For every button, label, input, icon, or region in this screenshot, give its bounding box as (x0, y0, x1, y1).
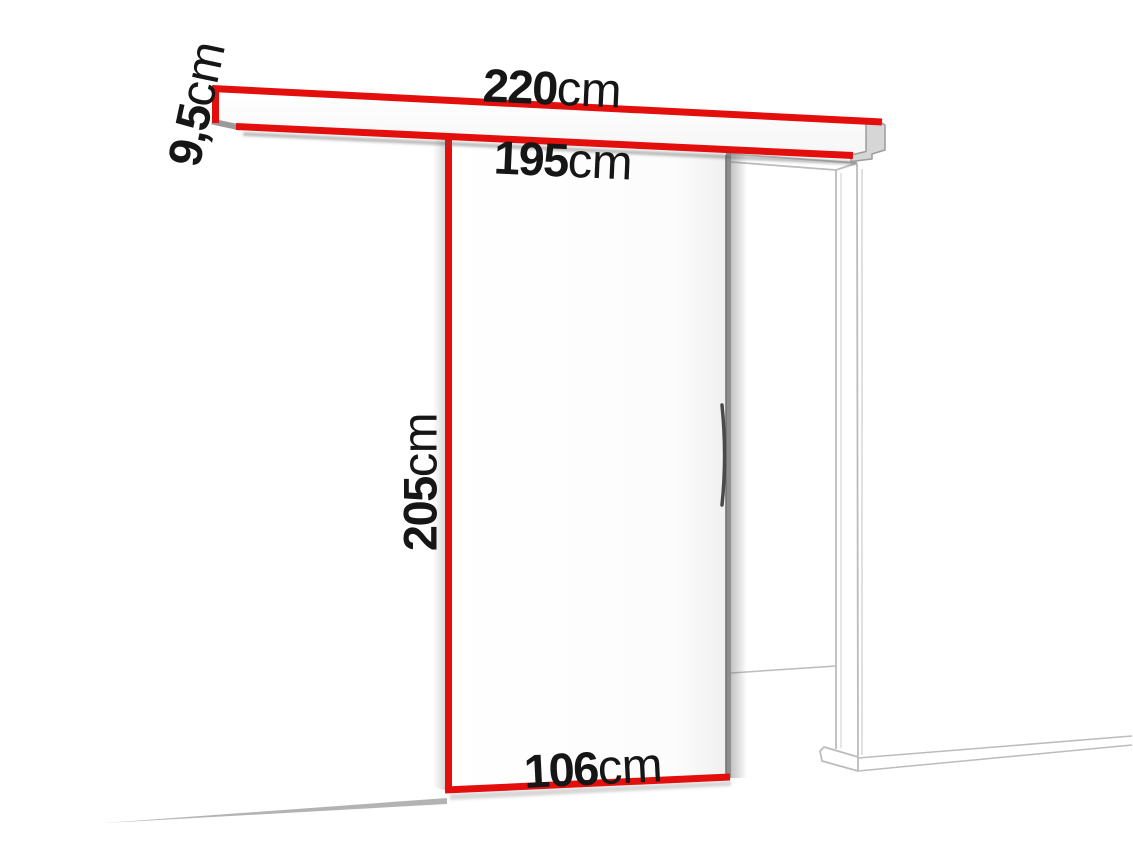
door-frame (731, 154, 1132, 771)
dimension-unit: cm (556, 62, 623, 119)
dimension-unit: cm (394, 413, 448, 477)
baseboard-top-line (858, 736, 1132, 758)
dimension-unit: cm (596, 738, 663, 795)
sliding-door (433, 136, 747, 800)
floor-line-left (104, 798, 447, 823)
dimension-label-door-height: 205cm (397, 413, 446, 551)
floor (104, 798, 447, 823)
dimension-value: 106 (523, 741, 599, 798)
door-panel (445, 137, 731, 792)
jamb-plinth (820, 747, 858, 771)
dimension-value: 220 (482, 58, 558, 114)
dimension-value: 205 (394, 477, 447, 551)
dimension-diagram: 220cm 9,5cm 195cm 205cm 106cm (0, 0, 1133, 849)
dimension-unit: cm (567, 134, 634, 191)
door-right-shadow (731, 152, 747, 778)
dimension-label-track-inner-length: 195cm (493, 133, 633, 188)
dimension-label-track-length: 220cm (482, 61, 622, 116)
baseboard-bottom-line (858, 745, 1132, 771)
dimension-value: 195 (493, 130, 569, 186)
jamb-outer-line (857, 164, 858, 756)
dimension-label-door-width: 106cm (523, 741, 663, 797)
